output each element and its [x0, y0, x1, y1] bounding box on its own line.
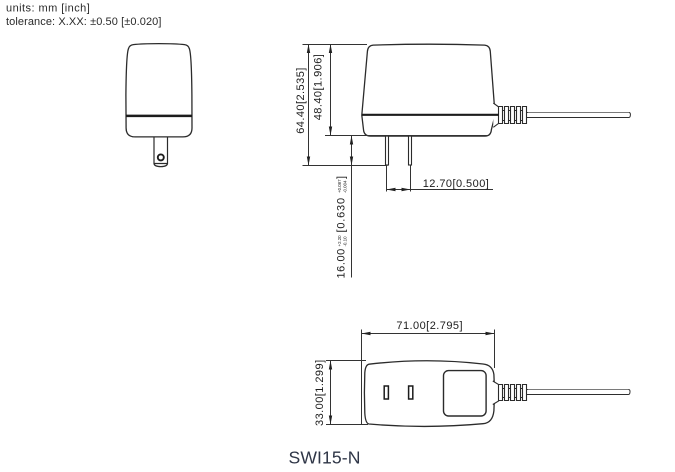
svg-text:[0.630: [0.630	[336, 197, 348, 232]
svg-text:48.40[1.906]: 48.40[1.906]	[313, 54, 325, 121]
svg-text:16.00: 16.00	[336, 248, 348, 278]
svg-text:tolerance: X.XX: ±0.50 [±0.020: tolerance: X.XX: ±0.50 [±0.020]	[6, 16, 162, 28]
svg-text:SWI15-N: SWI15-N	[289, 448, 361, 468]
svg-text:-0.10: -0.10	[343, 236, 348, 247]
svg-text:12.70[0.500]: 12.70[0.500]	[423, 178, 490, 190]
svg-text:33.00[1.299]: 33.00[1.299]	[314, 359, 326, 426]
svg-text:-0.004: -0.004	[343, 180, 348, 193]
svg-text:+2.20: +2.20	[337, 235, 342, 247]
svg-text:]: ]	[336, 176, 348, 179]
svg-text:71.00[2.795]: 71.00[2.795]	[396, 320, 463, 332]
svg-text:64.40[2.535]: 64.40[2.535]	[295, 67, 307, 134]
svg-text:units: mm [inch]: units: mm [inch]	[6, 2, 90, 14]
svg-text:+0.087: +0.087	[337, 179, 342, 193]
